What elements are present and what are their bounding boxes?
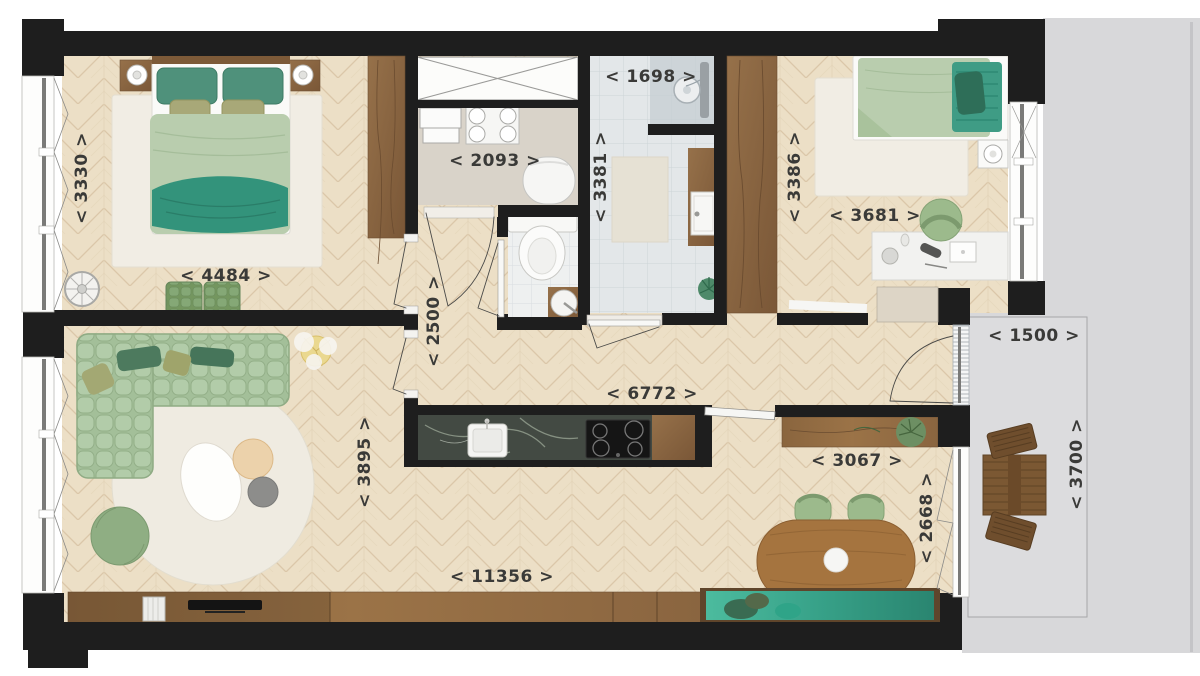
cooktop-icon bbox=[586, 420, 650, 458]
dim-bathroom-width: < 1698 > bbox=[605, 67, 697, 87]
pillow-icon bbox=[775, 603, 801, 619]
pillow-icon bbox=[189, 346, 234, 368]
side-table-icon bbox=[248, 477, 278, 507]
window-bedroom2 bbox=[1010, 102, 1037, 281]
bathroom-rug bbox=[612, 157, 668, 242]
entry-balcony-door bbox=[953, 325, 969, 405]
dim-living-length: < 11356 > bbox=[450, 567, 554, 587]
books-icon bbox=[143, 597, 165, 621]
floor-lamp-icon bbox=[65, 272, 99, 306]
dim-storage-width: < 2093 > bbox=[449, 151, 541, 171]
dim-bedroom1-length: < 4484 > bbox=[180, 266, 272, 286]
dim-bedroom2-length: < 3681 > bbox=[829, 206, 921, 226]
kitchen-island bbox=[404, 405, 712, 467]
window-living-room bbox=[22, 357, 68, 593]
washer-icon bbox=[420, 108, 461, 128]
kitchen-sink-icon bbox=[468, 419, 507, 458]
floor-plan-canvas: < 3330 > < 4484 > < 2093 > < 1698 > < 33… bbox=[0, 0, 1200, 676]
bedroom1-south-wall bbox=[62, 310, 404, 326]
side-table-icon bbox=[233, 439, 273, 479]
pillow-icon bbox=[954, 71, 986, 116]
single-bed-icon bbox=[853, 56, 1008, 140]
dim-bedroom1-width: < 3330 > bbox=[72, 132, 92, 224]
counter-wood-section bbox=[652, 415, 695, 460]
entry-doormat bbox=[877, 287, 938, 322]
dim-bedroom2-width: < 3386 > bbox=[785, 131, 805, 223]
pouf-icon bbox=[91, 507, 149, 565]
dryer-icon bbox=[423, 128, 459, 143]
pillow-icon bbox=[745, 593, 769, 609]
utility-table-icon bbox=[466, 106, 519, 144]
tv-console-icon bbox=[68, 592, 702, 623]
dim-hallway-width: < 2500 > bbox=[424, 275, 444, 367]
dim-dining-length: < 2668 > bbox=[917, 472, 937, 564]
floor-plan-drawing: < 3330 > < 4484 > < 2093 > < 1698 > < 33… bbox=[0, 0, 1200, 676]
wardrobe-icon bbox=[727, 56, 777, 313]
double-bed-icon bbox=[150, 56, 290, 234]
dim-dining-width: < 3067 > bbox=[811, 451, 903, 471]
window-bedroom1 bbox=[22, 76, 68, 312]
wardrobe-icon bbox=[368, 56, 405, 238]
tv-icon bbox=[188, 600, 262, 610]
window-bench-icon bbox=[700, 588, 940, 623]
dim-balcony-width: < 1500 > bbox=[988, 326, 1080, 346]
dim-living-width: < 3895 > bbox=[355, 416, 375, 508]
outdoor-table-icon bbox=[983, 455, 1046, 515]
sideboard-icon bbox=[782, 417, 938, 447]
dim-bathroom-length: < 3381 > bbox=[591, 131, 611, 223]
dim-hallway-length: < 6772 > bbox=[606, 384, 698, 404]
desk-chair-icon bbox=[920, 199, 962, 241]
dim-balcony-length: < 3700 > bbox=[1067, 418, 1087, 510]
